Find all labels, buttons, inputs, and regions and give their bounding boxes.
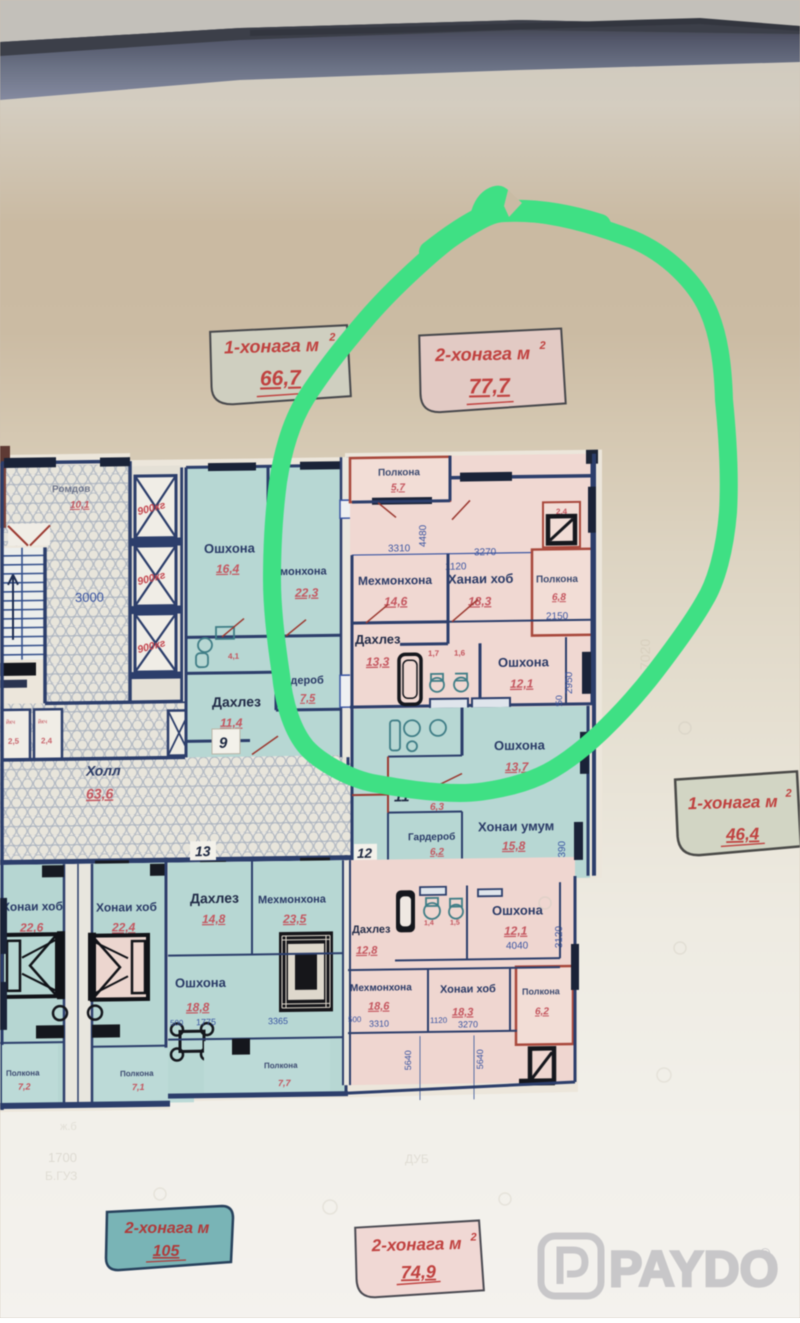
svg-text:Б.ГУЗ: Б.ГУЗ <box>45 1169 77 1183</box>
svg-text:6,8: 6,8 <box>552 592 566 603</box>
svg-text:2950: 2950 <box>564 671 575 694</box>
svg-text:1-хонага м: 1-хонага м <box>224 335 320 357</box>
svg-text:Дахлез: Дахлез <box>352 924 391 937</box>
svg-text:14,6: 14,6 <box>384 594 408 608</box>
svg-text:Ошхона: Ошхона <box>494 737 546 753</box>
svg-text:18,6: 18,6 <box>368 1001 390 1013</box>
svg-text:12: 12 <box>357 846 373 861</box>
svg-text:3365: 3365 <box>268 1016 288 1026</box>
svg-text:1-хонага м: 1-хонага м <box>688 792 779 813</box>
svg-text:500: 500 <box>348 1015 362 1024</box>
svg-text:ДУБ: ДУБ <box>405 1152 429 1166</box>
svg-text:13,3: 13,3 <box>366 655 390 669</box>
svg-text:Ошхона: Ошхона <box>175 975 227 991</box>
svg-text:12,8: 12,8 <box>356 945 378 957</box>
svg-text:46,4: 46,4 <box>725 824 760 844</box>
svg-text:3000: 3000 <box>75 590 104 605</box>
svg-text:18,8: 18,8 <box>186 1000 210 1014</box>
svg-text:2,4: 2,4 <box>41 736 53 745</box>
svg-text:7,5: 7,5 <box>300 693 316 705</box>
svg-text:7,1: 7,1 <box>132 1082 145 1092</box>
svg-text:Мехмонхона: Мехмонхона <box>258 893 327 906</box>
svg-text:Полкона: Полкона <box>522 986 561 997</box>
svg-text:22,4: 22,4 <box>111 920 136 934</box>
svg-text:77,7: 77,7 <box>469 375 512 399</box>
svg-text:2-хонага м: 2-хонага м <box>434 343 531 365</box>
svg-text:1775: 1775 <box>196 1017 216 1027</box>
svg-text:Мехмонхона: Мехмонхона <box>358 573 432 588</box>
svg-text:йкч: йкч <box>6 719 15 726</box>
svg-text:®: ® <box>760 1245 771 1261</box>
svg-text:Ромдов: Ромдов <box>52 484 90 496</box>
svg-text:1120: 1120 <box>430 1016 448 1025</box>
svg-text:Полкона: Полкона <box>536 574 578 586</box>
svg-text:Полкона: Полкона <box>264 1061 298 1070</box>
svg-text:Дахлез: Дахлез <box>212 693 261 710</box>
svg-text:Хонаи хоб: Хонаи хоб <box>440 983 496 996</box>
svg-text:18,3: 18,3 <box>468 594 492 608</box>
svg-text:2: 2 <box>469 1232 476 1244</box>
svg-text:Хонаи хоб: Хонаи хоб <box>2 899 63 914</box>
svg-text:7,7: 7,7 <box>278 1078 292 1088</box>
svg-text:15,8: 15,8 <box>502 839 526 853</box>
svg-text:4,1: 4,1 <box>228 652 240 661</box>
svg-text:11,4: 11,4 <box>220 716 243 730</box>
svg-text:Полкона: Полкона <box>120 1069 154 1078</box>
svg-text:16,4: 16,4 <box>216 562 240 576</box>
svg-text:12,1: 12,1 <box>510 677 534 691</box>
svg-text:3310: 3310 <box>369 1019 389 1029</box>
svg-text:2: 2 <box>328 332 335 344</box>
svg-text:66,7: 66,7 <box>260 366 303 390</box>
svg-text:3310: 3310 <box>388 543 411 554</box>
svg-text:7,2: 7,2 <box>18 1082 31 1092</box>
svg-text:монхона: монхона <box>280 565 328 578</box>
svg-text:1,5: 1,5 <box>450 920 460 927</box>
svg-text:105: 105 <box>153 1243 181 1260</box>
svg-text:13,7: 13,7 <box>505 760 530 774</box>
svg-text:9: 9 <box>219 735 228 752</box>
svg-text:6,2: 6,2 <box>430 847 444 858</box>
svg-text:Дахлез: Дахлез <box>355 631 401 647</box>
svg-text:2: 2 <box>784 788 791 800</box>
svg-text:5640: 5640 <box>403 1050 413 1070</box>
svg-text:2,5: 2,5 <box>8 737 20 746</box>
svg-text:Холл: Холл <box>85 762 121 779</box>
svg-text:Гардероб: Гардероб <box>408 831 455 844</box>
svg-text:1700: 1700 <box>48 1150 77 1165</box>
svg-text:22,3: 22,3 <box>294 586 319 600</box>
svg-text:1,7: 1,7 <box>428 649 440 658</box>
svg-text:Хонаи хоб: Хонаи хоб <box>96 900 157 915</box>
svg-text:5,7: 5,7 <box>391 482 405 493</box>
svg-text:500: 500 <box>170 1018 184 1027</box>
svg-text:12,1: 12,1 <box>504 924 528 938</box>
svg-text:14,8: 14,8 <box>202 912 226 926</box>
svg-text:18,3: 18,3 <box>452 1006 473 1018</box>
svg-text:10,1: 10,1 <box>70 500 90 511</box>
svg-text:3270: 3270 <box>458 1019 478 1029</box>
svg-text:2-хонага м: 2-хонага м <box>370 1234 462 1255</box>
svg-text:Хонаи умум: Хонаи умум <box>478 818 554 834</box>
svg-text:1,4: 1,4 <box>424 920 434 927</box>
svg-text:ж.б: ж.б <box>60 1121 77 1133</box>
svg-text:5640: 5640 <box>475 1049 485 1069</box>
svg-text:4480: 4480 <box>418 524 429 547</box>
svg-text:Мехмонхона: Мехмонхона <box>350 982 412 994</box>
svg-text:23,5: 23,5 <box>282 912 307 926</box>
svg-text:Ошхона: Ошхона <box>492 902 544 918</box>
svg-text:2: 2 <box>538 340 545 352</box>
svg-text:4040: 4040 <box>506 941 529 952</box>
svg-text:Дахлез: Дахлез <box>190 890 239 907</box>
svg-text:Ошхона: Ошхона <box>204 540 256 556</box>
svg-text:Ханаи хоб: Ханаи хоб <box>448 571 513 587</box>
svg-text:Ошхона: Ошхона <box>498 654 550 670</box>
svg-text:2-хонага м: 2-хонага м <box>124 1220 210 1237</box>
svg-text:74,9: 74,9 <box>401 1262 437 1283</box>
svg-text:йкч: йкч <box>38 718 47 725</box>
svg-text:63,6: 63,6 <box>86 785 113 801</box>
svg-text:13: 13 <box>195 843 211 859</box>
svg-text:Полкона: Полкона <box>378 467 420 479</box>
svg-text:PAYDO: PAYDO <box>609 1241 779 1297</box>
svg-text:6,2: 6,2 <box>535 1006 549 1017</box>
svg-text:1,6: 1,6 <box>454 648 466 657</box>
svg-text:Полкона: Полкона <box>6 1068 40 1077</box>
